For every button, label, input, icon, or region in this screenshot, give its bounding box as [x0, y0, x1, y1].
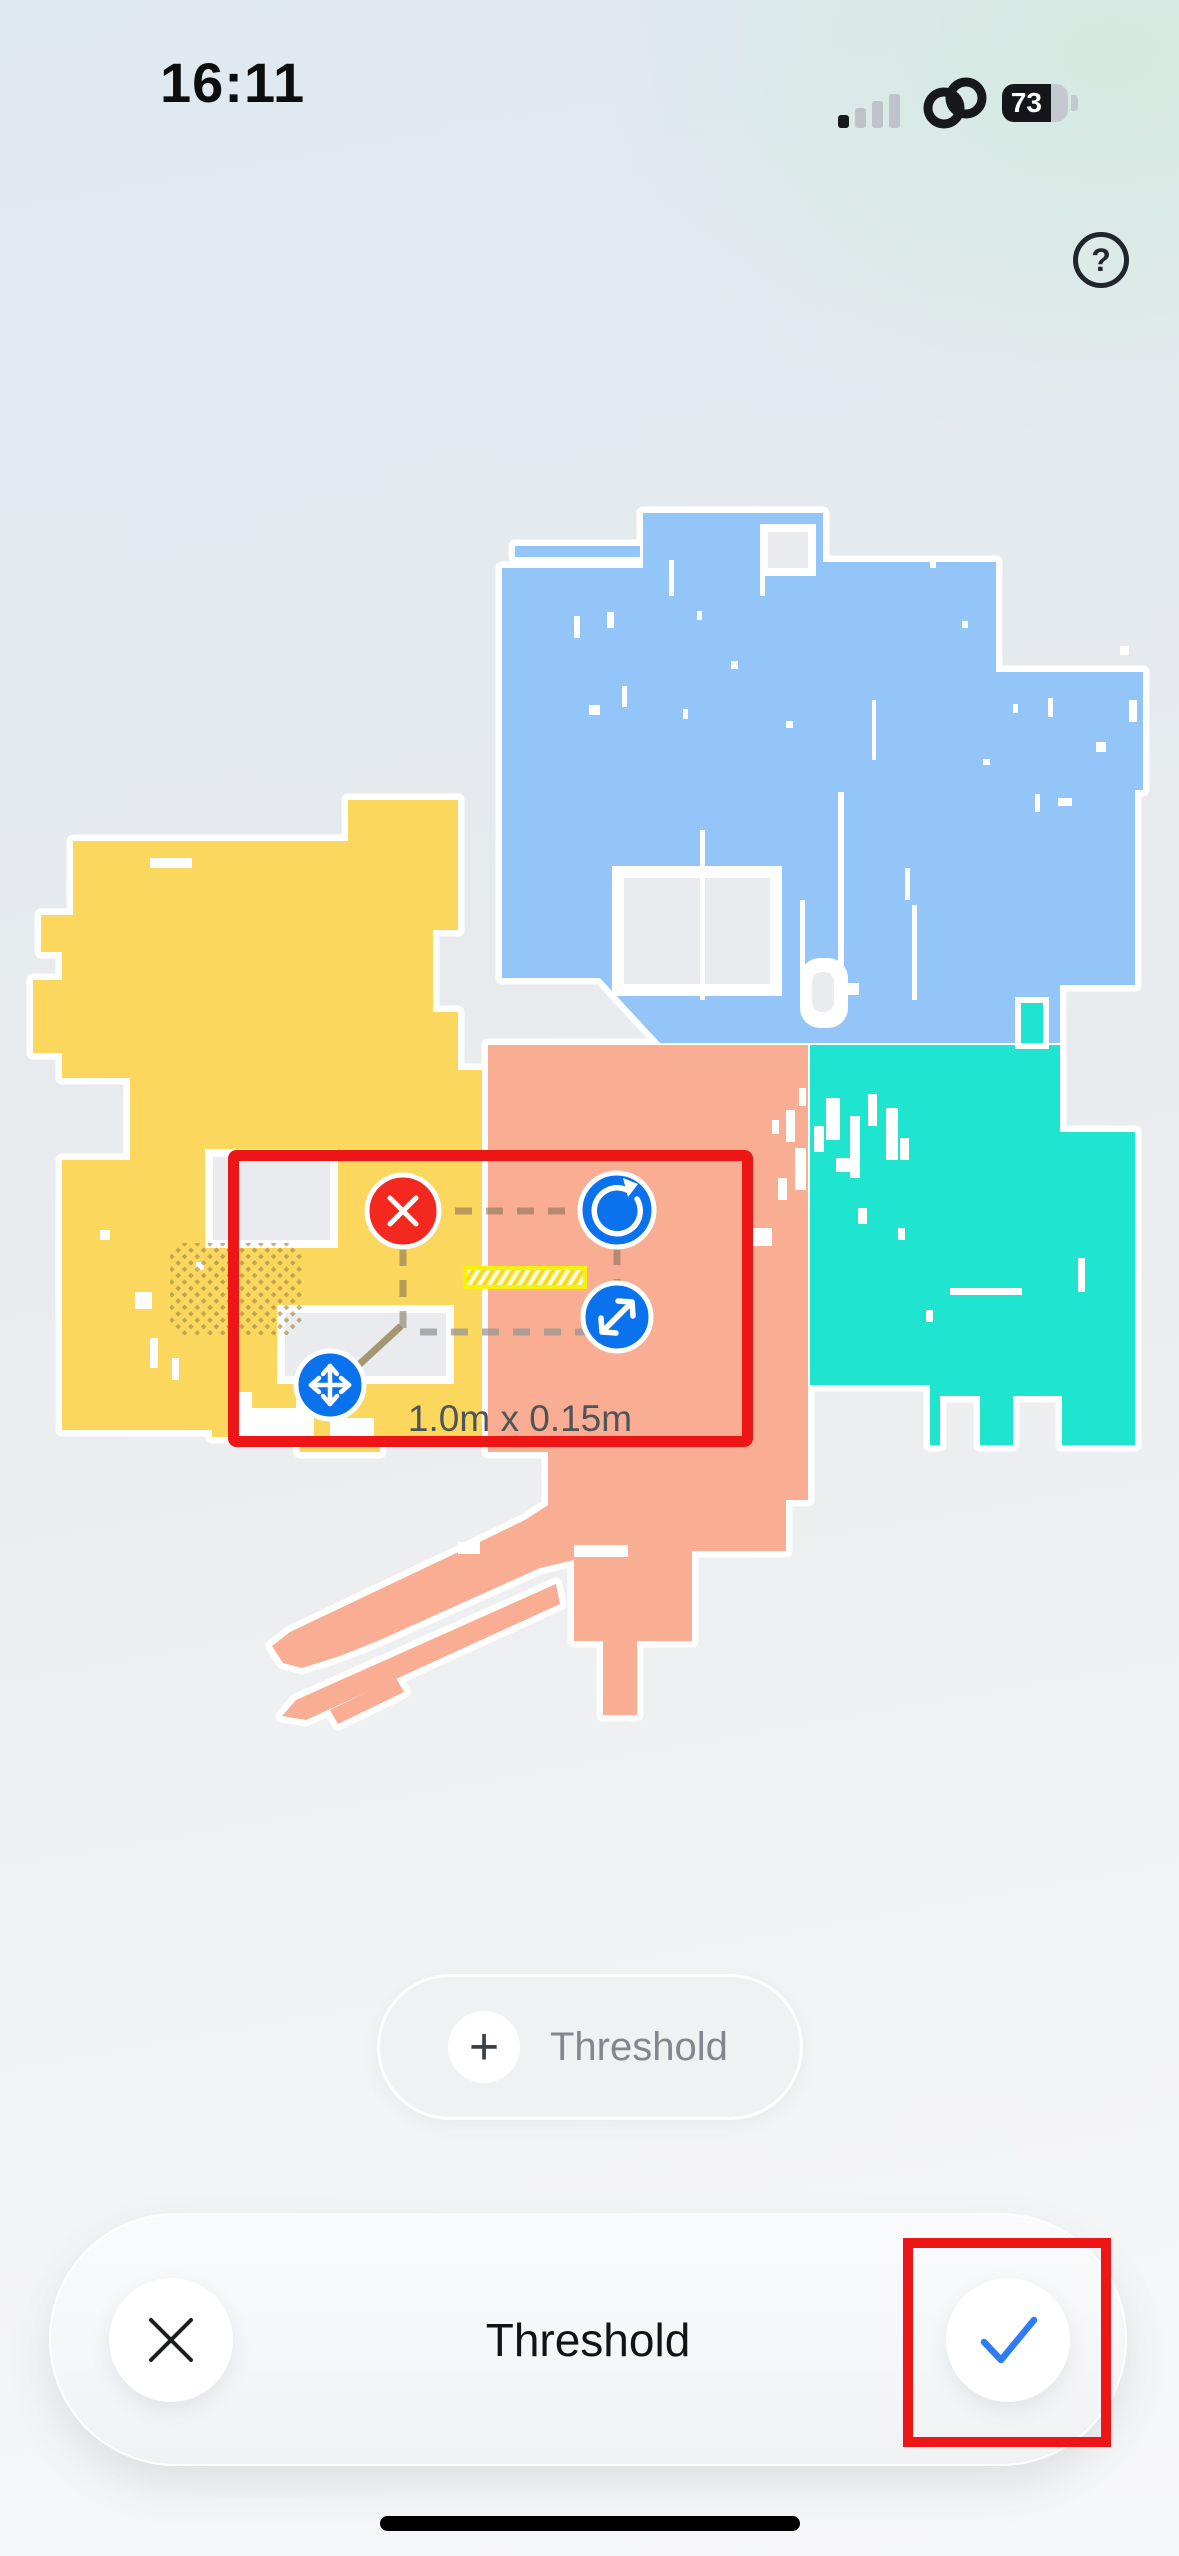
annotation-box — [903, 2238, 1111, 2447]
plus-icon: + — [448, 2011, 520, 2083]
close-icon — [109, 2278, 233, 2402]
delete-handle[interactable] — [367, 1175, 439, 1247]
room-teal — [810, 1045, 1135, 1445]
threshold-strip[interactable] — [465, 1268, 585, 1287]
move-handle[interactable] — [296, 1351, 364, 1419]
add-threshold-label: Threshold — [550, 2025, 728, 2070]
room-blue-strip — [515, 546, 640, 557]
teal-notch — [1018, 1000, 1046, 1046]
map-rooms — [33, 513, 1143, 1724]
cancel-button[interactable] — [109, 2278, 233, 2402]
resize-handle[interactable] — [583, 1283, 651, 1351]
floor-map[interactable] — [0, 0, 1179, 2556]
add-threshold-button[interactable]: + Threshold — [377, 1974, 803, 2120]
dimension-label: 1.0m x 0.15m — [370, 1398, 670, 1440]
rotate-handle[interactable] — [580, 1173, 654, 1247]
screen: 16:11 73 ? — [0, 0, 1179, 2556]
home-indicator[interactable] — [380, 2516, 800, 2531]
